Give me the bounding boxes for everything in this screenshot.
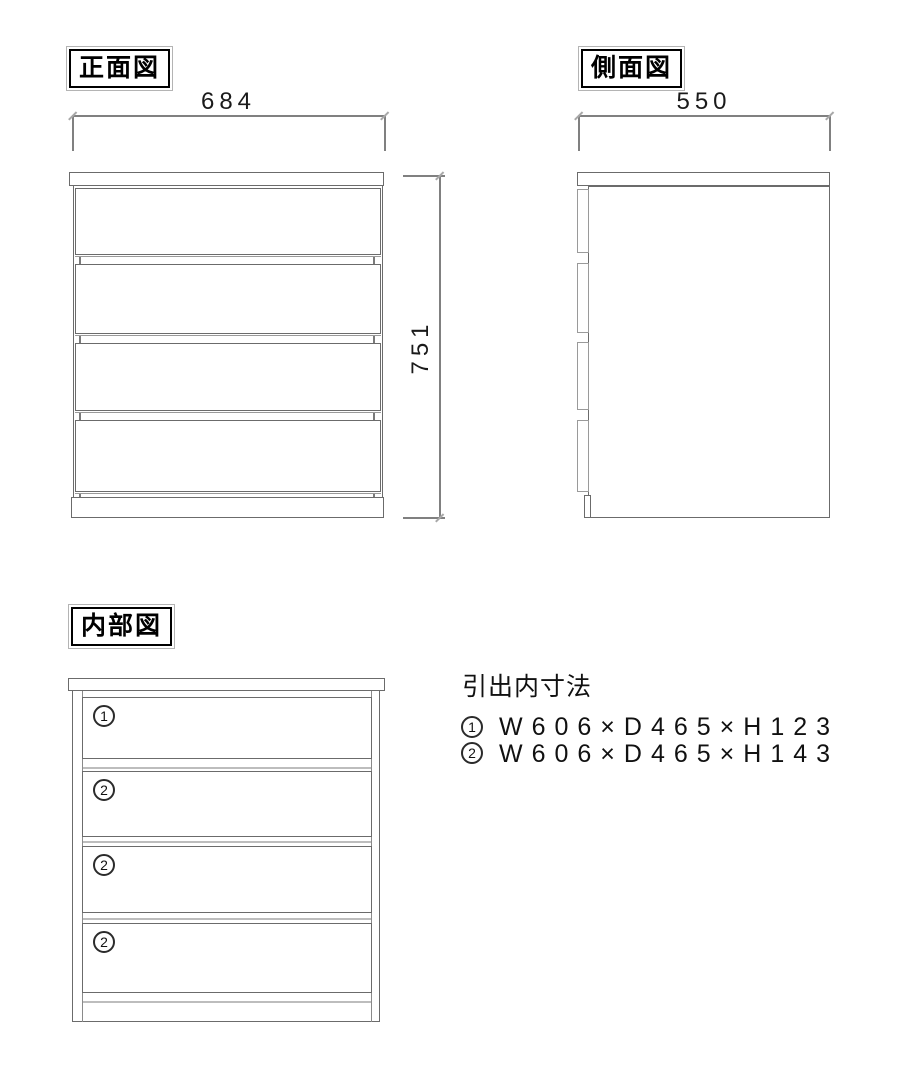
internal-shelf-line [83,1001,371,1003]
internal-shelf-line [83,767,371,769]
side-drawer-edge-1 [577,189,589,253]
legend-number-badge-2: 2 [461,742,483,764]
front-top-panel [69,172,384,186]
front-width-dimension-text: 684 [72,89,385,115]
front-drawer-4 [75,420,381,492]
internal-drawer-4 [82,923,372,993]
front-width-extension-right [384,115,386,151]
drawer-number-badge-2: 2 [93,779,115,801]
internal-drawer-2 [82,771,372,837]
internal-view-label: 内部図 [71,607,172,646]
drawer-number-badge-3: 2 [93,854,115,876]
front-view-label: 正面図 [69,49,170,88]
side-view-label: 側面図 [581,49,682,88]
internal-shelf-line [83,841,371,843]
legend-title: 引出内寸法 [462,672,592,702]
legend-dims-1: W606×D465×H123 [499,713,839,741]
front-drawer-2 [75,264,381,334]
front-width-dimension-line [72,115,386,117]
front-base-plinth [71,497,384,518]
internal-shelf-line [83,918,371,920]
side-depth-extension-right [829,115,831,151]
furniture-dimension-diagram: 正面図 684 751 側面図 550 [0,0,900,1070]
drawer-number-badge-1: 1 [93,705,115,727]
front-rail-3 [75,412,381,420]
front-rail-2 [75,335,381,343]
side-depth-extension-left [578,115,580,151]
side-view-label-box: 側面図 [578,46,685,91]
front-rail-1 [75,256,381,264]
side-depth-dimension-line [578,115,831,117]
internal-top-panel [68,678,385,691]
legend-dims-2: W606×D465×H143 [499,740,839,768]
side-front-foot [584,495,591,518]
side-drawer-edge-4 [577,420,589,492]
front-view-label-box: 正面図 [66,46,173,91]
internal-drawer-1 [82,697,372,759]
front-width-extension-left [72,115,74,151]
legend-number-badge-1: 1 [461,716,483,738]
front-drawer-3 [75,343,381,411]
internal-drawer-3 [82,846,372,913]
drawer-number-badge-4: 2 [93,931,115,953]
side-depth-dimension-text: 550 [578,89,830,115]
side-drawer-edge-2 [577,263,589,333]
internal-view-label-box: 内部図 [68,604,175,649]
side-drawer-edge-3 [577,342,589,410]
front-height-dimension-line [439,175,441,518]
side-panel-body [588,186,830,518]
front-height-dimension-text: 751 [408,297,434,397]
side-top-panel [577,172,830,186]
front-drawer-1 [75,188,381,255]
